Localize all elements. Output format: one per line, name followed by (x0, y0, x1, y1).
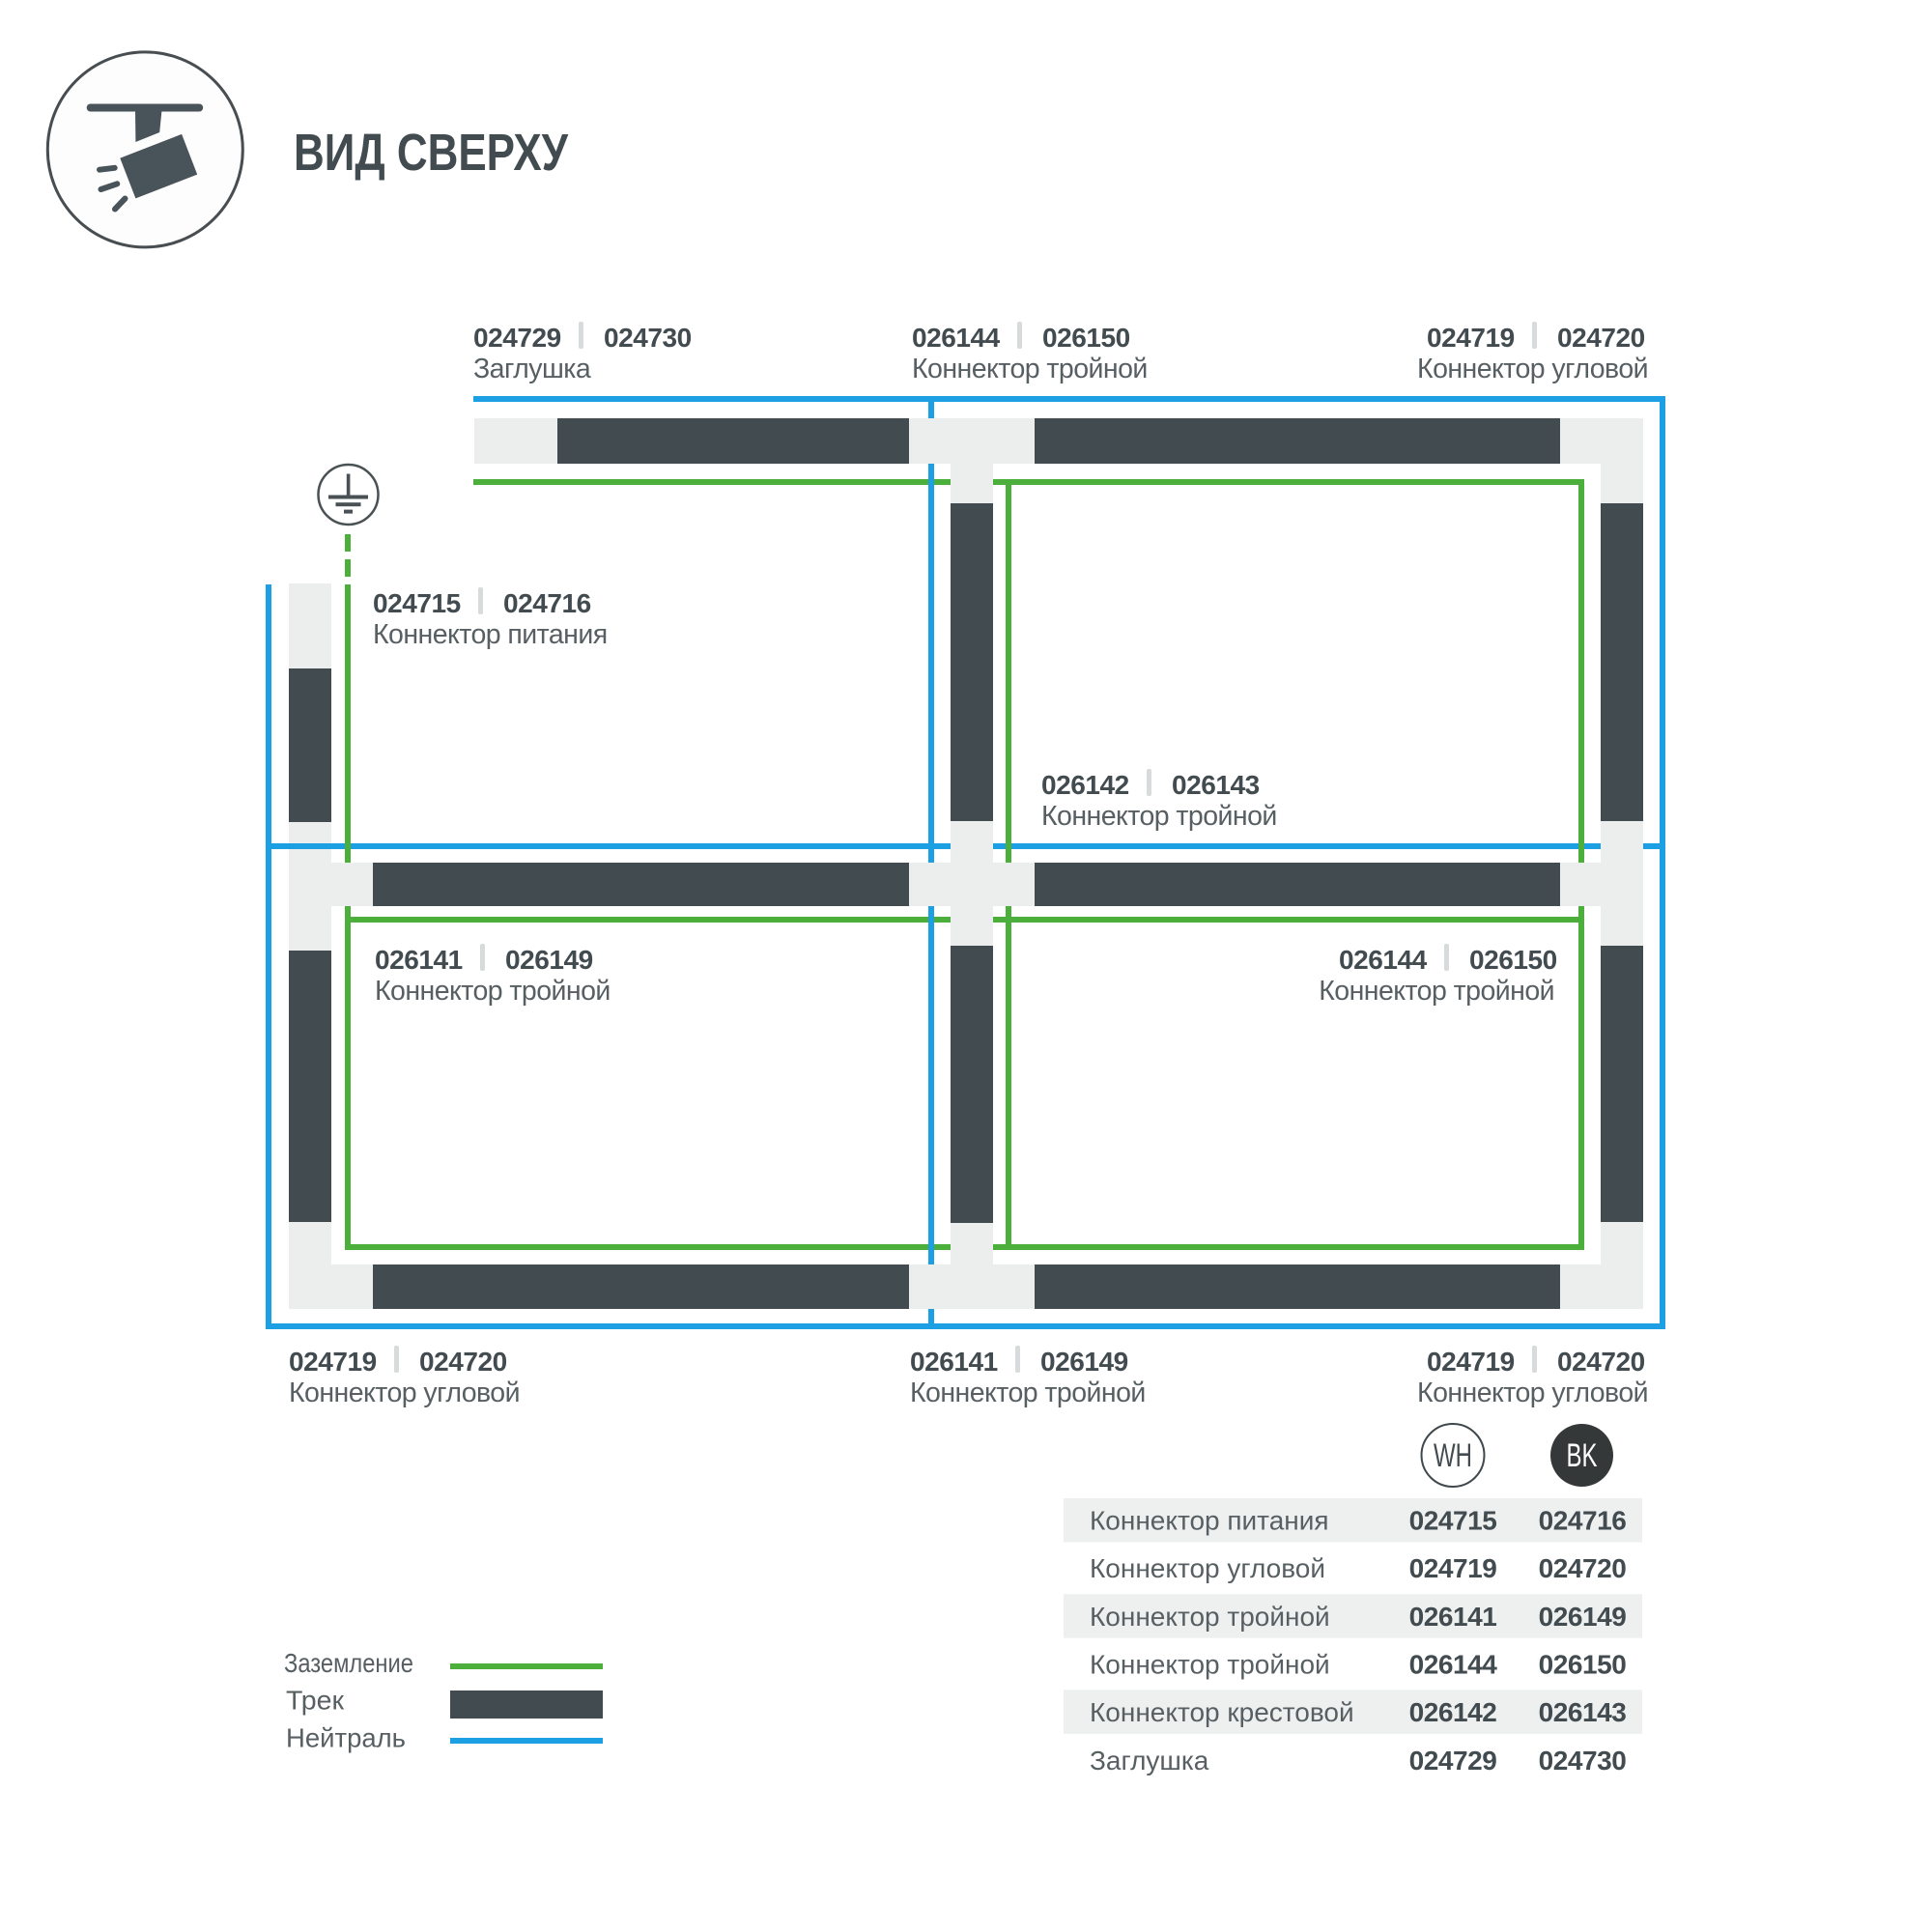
svg-text:024716: 024716 (503, 588, 591, 618)
svg-text:024720: 024720 (1539, 1553, 1627, 1583)
svg-text:026143: 026143 (1539, 1697, 1627, 1727)
svg-text:026150: 026150 (1042, 323, 1130, 353)
svg-text:024719: 024719 (1427, 323, 1515, 353)
svg-text:Трек: Трек (286, 1686, 345, 1716)
svg-text:Заземление: Заземление (284, 1648, 413, 1678)
svg-text:Коннектор угловой: Коннектор угловой (289, 1378, 520, 1408)
svg-text:024719: 024719 (1427, 1347, 1515, 1377)
svg-text:Заглушка: Заглушка (1090, 1746, 1209, 1776)
svg-text:026144: 026144 (1339, 945, 1428, 975)
svg-text:024715: 024715 (1409, 1506, 1497, 1536)
svg-text:Коннектор угловой: Коннектор угловой (1417, 354, 1648, 384)
svg-text:WH: WH (1434, 1437, 1472, 1474)
svg-text:Коннектор питания: Коннектор питания (373, 619, 608, 650)
svg-text:Коннектор тройной: Коннектор тройной (1090, 1602, 1330, 1632)
svg-text:Коннектор крестовой: Коннектор крестовой (1090, 1697, 1354, 1727)
svg-text:026141: 026141 (375, 945, 463, 975)
svg-text:BK: BK (1567, 1437, 1598, 1474)
svg-text:Коннектор тройной: Коннектор тройной (912, 354, 1148, 384)
svg-text:026142: 026142 (1041, 770, 1129, 800)
svg-text:026144: 026144 (912, 323, 1001, 353)
svg-text:024730: 024730 (604, 323, 692, 353)
svg-text:024720: 024720 (419, 1347, 507, 1377)
svg-text:Коннектор угловой: Коннектор угловой (1090, 1553, 1325, 1583)
svg-text:Коннектор тройной: Коннектор тройной (1319, 976, 1554, 1007)
svg-text:Коннектор угловой: Коннектор угловой (1417, 1378, 1648, 1408)
svg-text:Коннектор тройной: Коннектор тройной (1090, 1650, 1330, 1680)
svg-text:024729: 024729 (473, 323, 561, 353)
svg-text:Коннектор тройной: Коннектор тройной (910, 1378, 1146, 1408)
svg-text:024729: 024729 (1409, 1746, 1497, 1776)
svg-text:026141: 026141 (1409, 1602, 1497, 1632)
svg-text:026149: 026149 (1040, 1347, 1128, 1377)
svg-text:024730: 024730 (1539, 1746, 1627, 1776)
svg-text:026149: 026149 (505, 945, 593, 975)
svg-text:024719: 024719 (1409, 1553, 1497, 1583)
svg-text:024716: 024716 (1539, 1506, 1627, 1536)
svg-text:026150: 026150 (1469, 945, 1557, 975)
svg-text:ВИД СВЕРХУ: ВИД СВЕРХУ (294, 124, 569, 182)
svg-text:026144: 026144 (1409, 1650, 1498, 1680)
svg-text:Нейтраль: Нейтраль (286, 1722, 406, 1752)
svg-text:Коннектор тройной: Коннектор тройной (1041, 801, 1277, 832)
svg-text:024715: 024715 (373, 588, 461, 618)
svg-text:Заглушка: Заглушка (473, 354, 591, 384)
svg-text:026142: 026142 (1409, 1697, 1497, 1727)
svg-text:026150: 026150 (1539, 1650, 1627, 1680)
svg-text:024720: 024720 (1557, 323, 1645, 353)
svg-text:026141: 026141 (910, 1347, 998, 1377)
svg-text:Коннектор тройной: Коннектор тройной (375, 976, 611, 1007)
svg-text:024719: 024719 (289, 1347, 377, 1377)
svg-text:024720: 024720 (1557, 1347, 1645, 1377)
svg-text:Коннектор питания: Коннектор питания (1090, 1506, 1329, 1536)
svg-text:026143: 026143 (1172, 770, 1260, 800)
svg-text:026149: 026149 (1539, 1602, 1627, 1632)
